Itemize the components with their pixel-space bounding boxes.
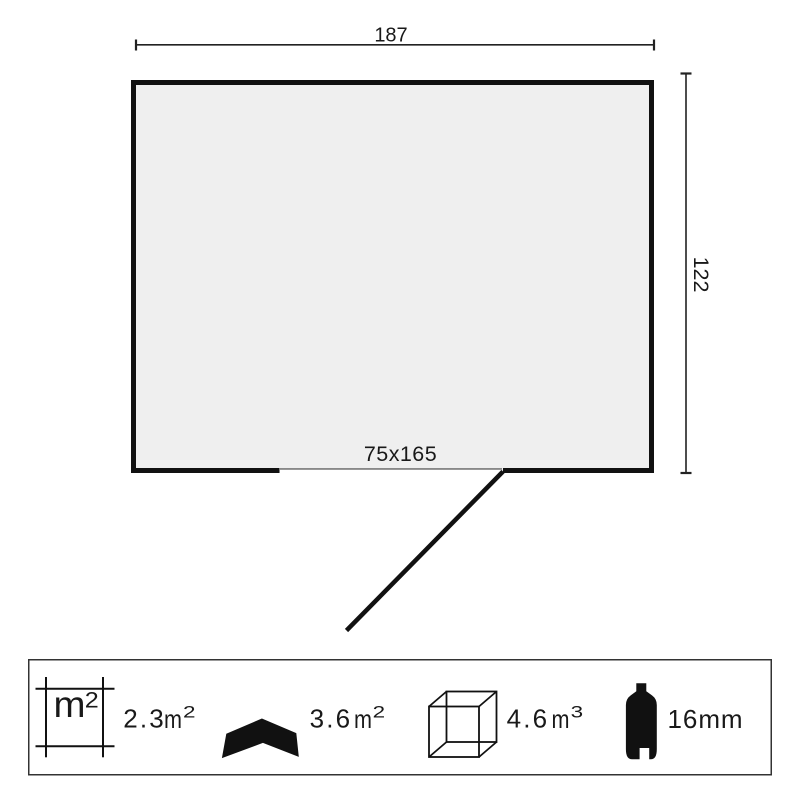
- svg-text:m: m: [54, 684, 86, 725]
- svg-text:4.6: 4.6: [507, 704, 550, 734]
- svg-text:m: m: [354, 704, 372, 734]
- svg-text:2: 2: [373, 703, 386, 722]
- svg-text:122: 122: [689, 257, 713, 293]
- svg-text:m: m: [164, 704, 182, 734]
- svg-text:75x165: 75x165: [364, 442, 437, 466]
- svg-text:2.3: 2.3: [123, 704, 166, 734]
- svg-text:2: 2: [85, 688, 99, 713]
- svg-text:187: 187: [374, 25, 407, 47]
- svg-text:m: m: [552, 704, 570, 734]
- svg-text:3.6: 3.6: [310, 704, 353, 734]
- svg-text:2: 2: [183, 703, 196, 722]
- svg-text:16mm: 16mm: [668, 704, 744, 734]
- svg-text:3: 3: [571, 703, 584, 722]
